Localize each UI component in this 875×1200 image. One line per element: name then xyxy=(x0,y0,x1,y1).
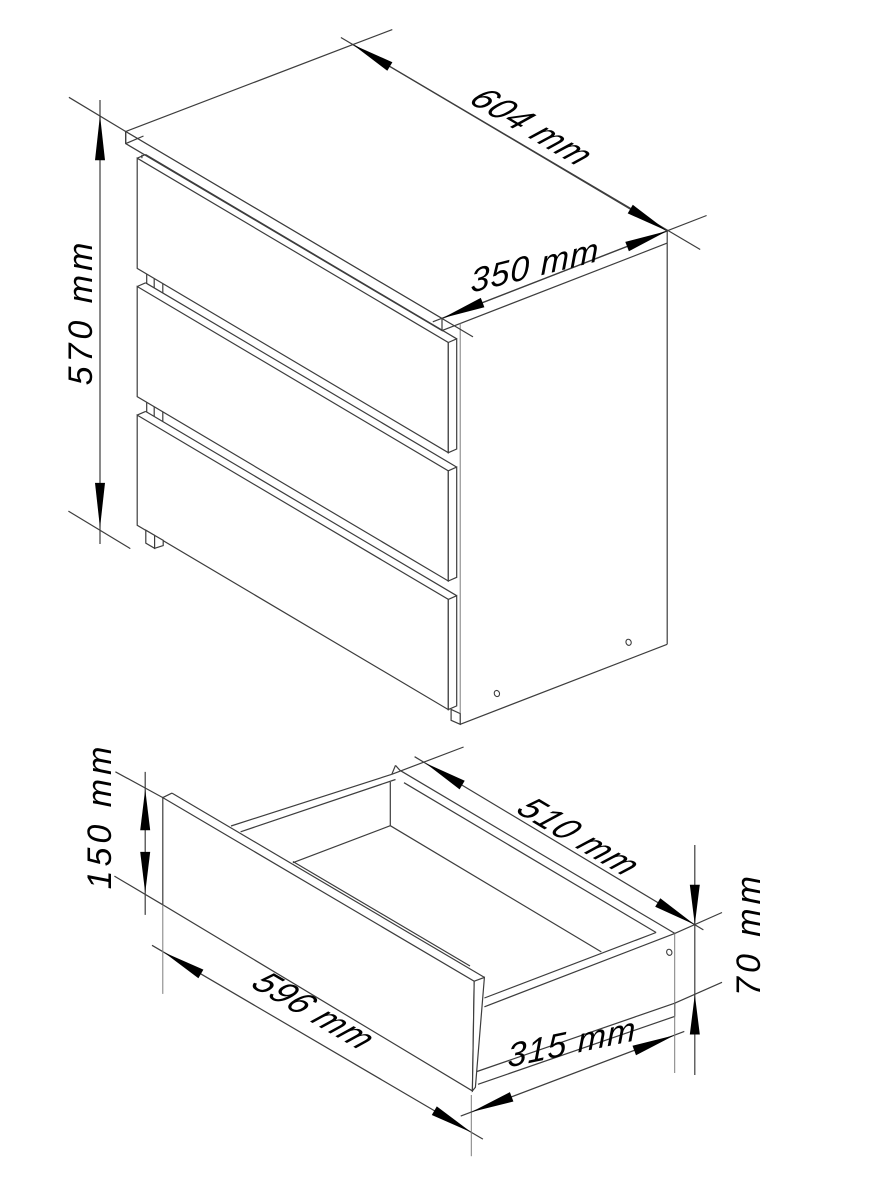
svg-text:570 mm: 570 mm xyxy=(62,239,100,386)
svg-text:70 mm: 70 mm xyxy=(730,872,768,996)
svg-text:150 mm: 150 mm xyxy=(81,743,119,890)
